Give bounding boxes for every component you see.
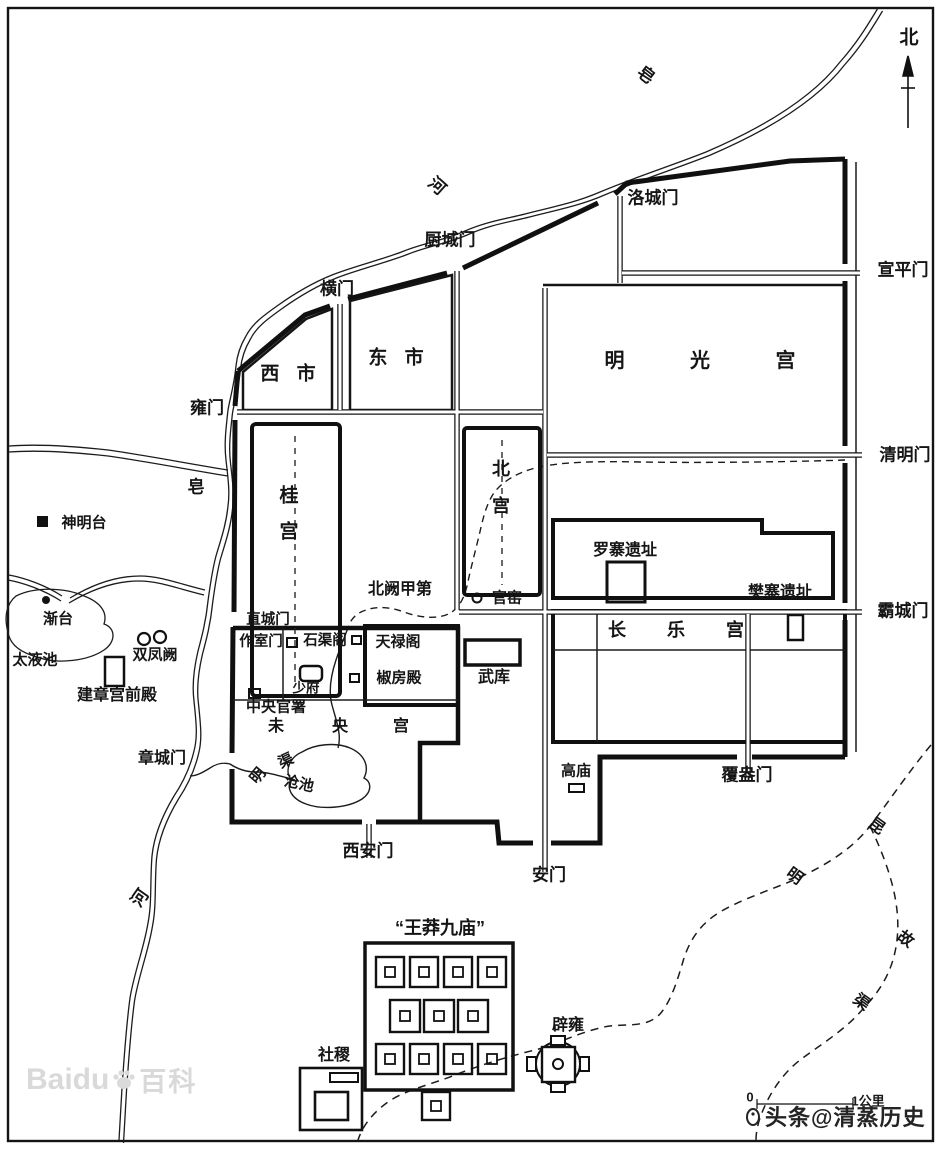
biyong-building [527,1036,589,1092]
shenmingtai-label: 神明台 [61,516,106,531]
shuangfengque-symbol [138,633,150,645]
gaomiao-label: 高庙 [561,764,591,779]
guanyao-label: 官窑 [492,591,522,606]
shiquge-label: 石渠阁 [303,634,347,649]
wuku-building [465,640,520,665]
toutiao-text: 头条@清蒸历史 [765,1100,925,1132]
baidu-paw-icon [111,1067,137,1093]
toutiao-watermark: 头条@清蒸历史 [745,1100,925,1132]
wangmang-jiumiao-label: “王莽九庙” [395,919,485,937]
gate-luocheng: 洛城门 [628,190,679,207]
gate-chucheng: 厨城门 [425,232,476,249]
gate-zhicheng: 直城门 [246,613,290,628]
weiyang-char-wei: 未 [268,719,284,735]
toutiao-logo-icon [745,1106,761,1126]
zhongyangguanshu-label: 中央官署 [246,700,306,715]
sheji-building [300,1068,362,1130]
shaofu-label: 少府 [293,681,320,695]
gate-qingming: 清明门 [880,447,931,464]
han-changan-map: 北 皂 河 皂 河 洛城门 宣平门 厨城门 横门 雍门 清明门 霸城门 直城门 … [0,0,941,1152]
bei-palace-char1: 北 [492,460,510,478]
jiantai-symbol [42,596,50,604]
biyong-label: 辟雍 [552,1018,584,1034]
wuku-label: 武库 [478,670,510,686]
baike-wordmark: 百科 [139,1060,197,1099]
map-drawing [0,0,941,1152]
gate-bacheng: 霸城门 [878,603,929,620]
mingguang-palace-label: 明 光 宫 [574,351,825,371]
bei-palace-char2: 宫 [492,497,510,515]
tianluge-label: 天禄阁 [375,635,420,650]
fanzhai-label: 樊寨遗址 [748,585,812,601]
beiquejiadi-label: 北阙甲第 [368,582,432,598]
gate-fuang: 覆盎门 [722,767,773,784]
luozhai-label: 罗寨遗址 [593,543,657,559]
nine-temples [365,943,513,1120]
baidu-wordmark: Baidu [26,1063,109,1097]
gaomiao-building [569,784,584,792]
gate-zhangcheng: 章城门 [138,751,186,767]
shaofu-building [300,666,322,681]
gate-an: 安门 [532,867,566,884]
shenmingtai-symbol [37,516,48,527]
map-frame [8,8,933,1141]
gui-palace-char1: 桂 [279,487,298,506]
gate-xuanping: 宣平门 [878,262,929,279]
sheji-label: 社稷 [318,1048,350,1064]
gate-hengmen: 横门 [320,281,354,298]
gate-zuoshi: 作室门 [239,635,283,650]
weiyang-char-yang: 央 [332,719,348,735]
jianzhang-building [105,657,124,686]
taiyechi-label: 太液池 [12,653,57,668]
jianzhang-label: 建章宫前殿 [77,688,157,704]
gui-palace-char2: 宫 [279,523,298,542]
north-label: 北 [899,29,918,48]
weiyang-char-gong: 宫 [393,719,409,735]
west-market-label: 西 市 [260,365,321,384]
east-market-label: 东 市 [368,349,429,368]
baidu-watermark: Baidu 百科 [26,1060,197,1099]
north-arrow-icon [901,56,915,128]
gate-xian: 西安门 [343,843,394,860]
changle-palace-label: 长 乐 宫 [590,621,762,639]
shuangfengque-label: 双凤阙 [132,648,177,663]
jiaofangdian-label: 椒房殿 [376,671,421,686]
gate-yongmen: 雍门 [190,400,224,417]
river-zao-label-west: 皂 [188,479,205,496]
jiantai-label: 渐台 [43,612,73,627]
